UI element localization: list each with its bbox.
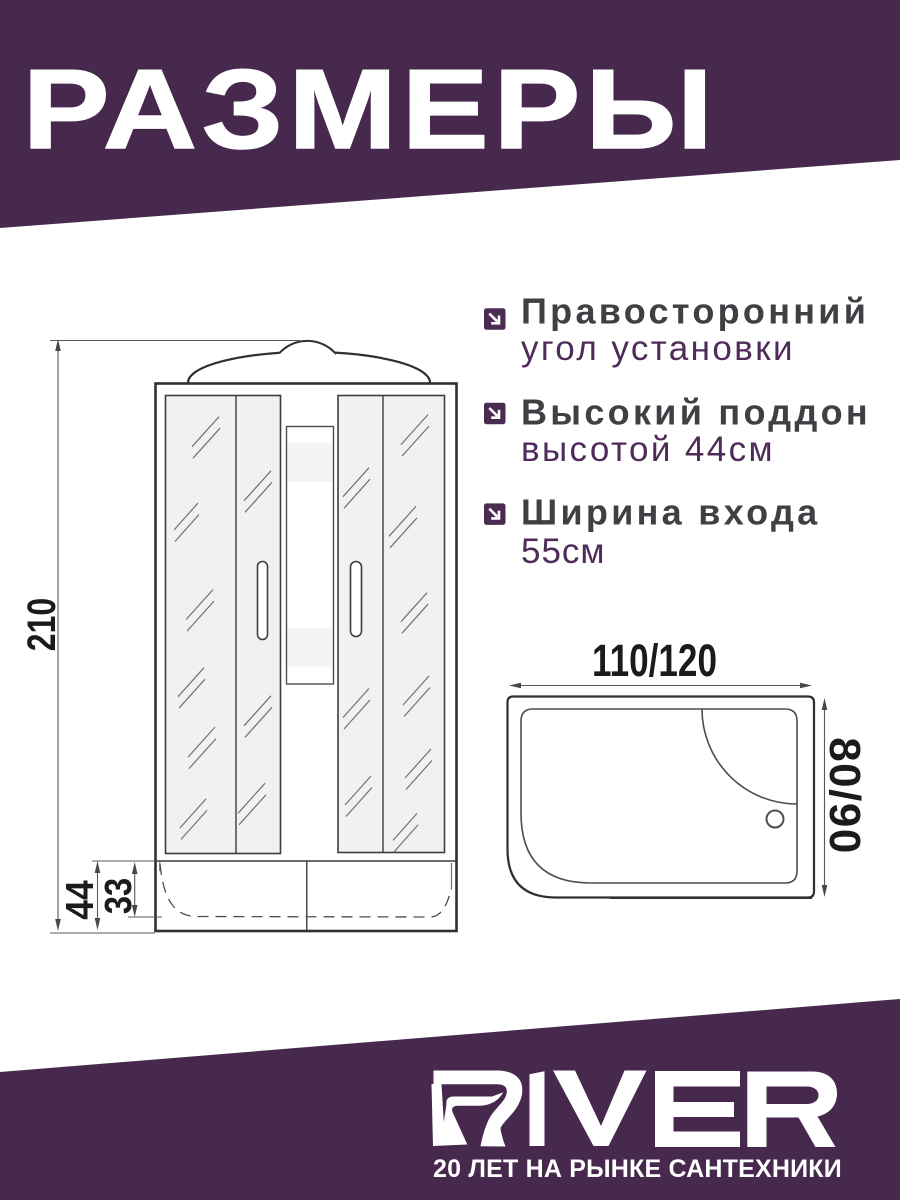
svg-text:55см: 55см [521,532,606,571]
svg-text:Правосторонний: Правосторонний [521,290,869,331]
svg-text:210: 210 [19,598,64,651]
svg-text:Высокий поддон: Высокий поддон [521,391,871,432]
svg-text:33: 33 [97,878,140,914]
svg-text:20 ЛЕТ НА РЫНКЕ САНТЕХНИКИ: 20 ЛЕТ НА РЫНКЕ САНТЕХНИКИ [433,1155,842,1183]
svg-text:угол установки: угол установки [521,329,795,368]
svg-text:80/90: 80/90 [820,737,869,855]
svg-text:РАЗМЕРЫ: РАЗМЕРЫ [23,45,718,172]
svg-text:44: 44 [57,880,101,920]
svg-text:110/120: 110/120 [592,635,717,686]
svg-text:Ширина входа: Ширина входа [521,492,820,533]
svg-text:высотой 44см: высотой 44см [521,430,775,469]
